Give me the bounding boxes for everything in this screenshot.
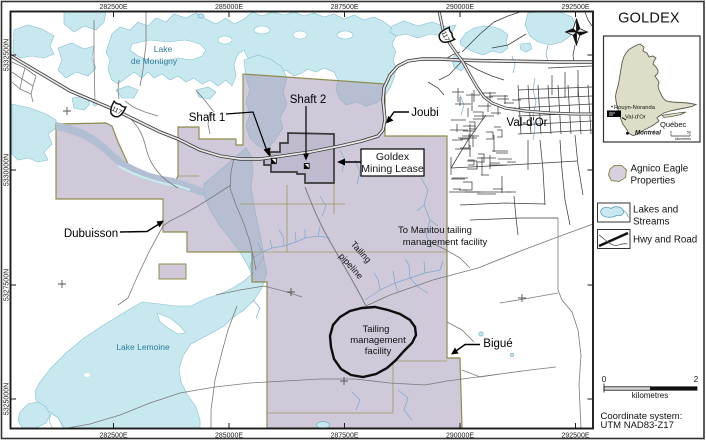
svg-text:facility: facility — [365, 346, 392, 357]
svg-text:0: 0 — [602, 375, 607, 384]
svg-text:kilometres: kilometres — [632, 391, 668, 400]
svg-text:UTM NAD83-Z17: UTM NAD83-Z17 — [601, 420, 674, 431]
svg-text:de Montigny: de Montigny — [131, 56, 178, 66]
svg-text:Lake Lemoine: Lake Lemoine — [116, 342, 170, 352]
svg-text:Streams: Streams — [633, 217, 670, 228]
svg-text:287500E: 287500E — [330, 4, 358, 11]
svg-text:292500E: 292500E — [561, 4, 589, 11]
svg-text:5325000N: 5325000N — [4, 383, 11, 415]
svg-text:Joubi: Joubi — [411, 107, 439, 119]
svg-text:Rouyn-Noranda: Rouyn-Noranda — [614, 105, 656, 111]
svg-text:Montréal: Montréal — [635, 130, 661, 137]
svg-text:290000E: 290000E — [446, 433, 474, 440]
svg-text:Tailing: Tailing — [363, 324, 390, 335]
svg-text:kilometres: kilometres — [675, 137, 691, 141]
svg-text:285000E: 285000E — [215, 433, 243, 440]
svg-text:Goldex: Goldex — [376, 151, 410, 163]
svg-text:5327500N: 5327500N — [4, 269, 11, 301]
svg-text:0: 0 — [670, 131, 672, 135]
svg-text:Dubuisson: Dubuisson — [64, 228, 118, 240]
svg-text:Québec: Québec — [660, 120, 687, 129]
svg-text:management facility: management facility — [403, 237, 488, 248]
svg-text:282500E: 282500E — [99, 433, 127, 440]
svg-text:Agnico Eagle: Agnico Eagle — [631, 164, 689, 175]
svg-text:Mining Lease: Mining Lease — [361, 163, 424, 175]
svg-text:282500E: 282500E — [99, 4, 127, 11]
svg-text:Properties: Properties — [631, 176, 676, 187]
svg-text:290000E: 290000E — [446, 4, 474, 11]
svg-text:management: management — [350, 335, 406, 346]
svg-text:50: 50 — [687, 131, 691, 135]
svg-text:GOLDEX: GOLDEX — [618, 11, 680, 27]
svg-text:Shaft 1: Shaft 1 — [189, 112, 225, 124]
svg-text:Val-d'Or: Val-d'Or — [625, 115, 646, 121]
svg-text:Bigué: Bigué — [483, 338, 512, 350]
svg-text:Shaft 2: Shaft 2 — [290, 94, 326, 106]
svg-text:5332500N: 5332500N — [4, 39, 11, 71]
svg-text:Lake: Lake — [154, 44, 173, 54]
svg-text:2: 2 — [694, 375, 699, 384]
svg-text:5330000N: 5330000N — [4, 154, 11, 186]
svg-text:Hwy and Road: Hwy and Road — [633, 235, 697, 246]
svg-text:287500E: 287500E — [330, 433, 358, 440]
svg-text:Lakes and: Lakes and — [633, 205, 678, 216]
svg-text:To Manitou tailing: To Manitou tailing — [398, 225, 472, 236]
svg-text:292500E: 292500E — [561, 433, 589, 440]
svg-text:Val-d'Or: Val-d'Or — [507, 117, 548, 129]
svg-text:285000E: 285000E — [215, 4, 243, 11]
